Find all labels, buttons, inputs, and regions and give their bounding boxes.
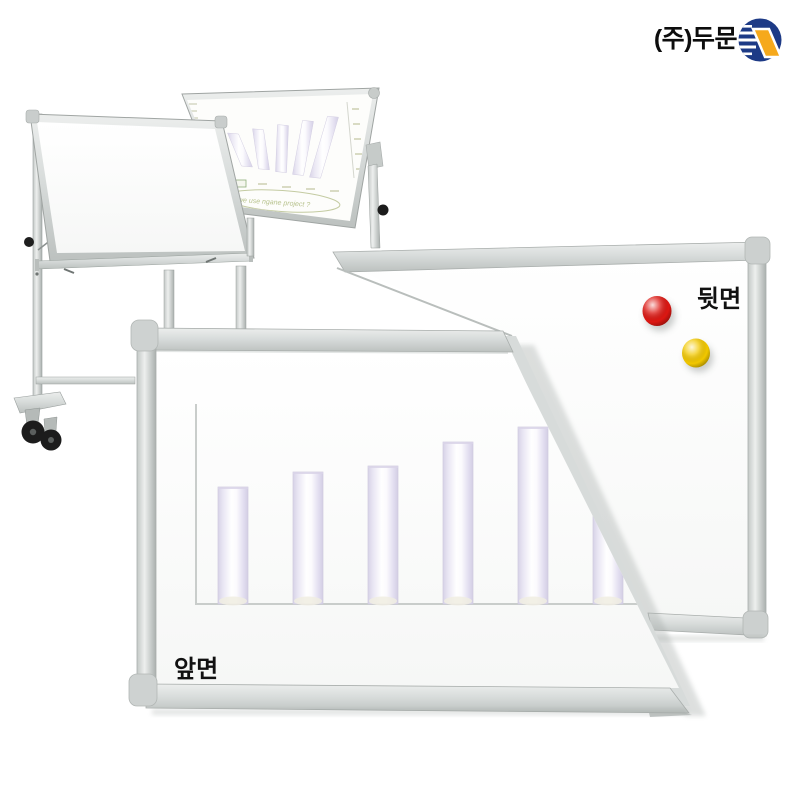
flip-lock-knob-left: [24, 237, 34, 247]
corner-cap: [745, 237, 770, 264]
corner-cap: [369, 88, 380, 99]
stand-rear-connector: [247, 218, 254, 256]
company-name: (주)두문: [654, 25, 738, 53]
product-photo: we use ngane project ?: [0, 0, 800, 800]
tray-end-cap: [35, 259, 39, 271]
back-board-label: 뒷면: [697, 286, 741, 313]
front-board-top-frame: [146, 328, 513, 352]
logo-mark: [730, 19, 782, 62]
caster-wheel-rear: [41, 417, 62, 451]
corner-cap: [215, 116, 227, 128]
brand-logo: (주)두문: [654, 19, 782, 62]
stand-lower-crossbar: [36, 377, 135, 384]
tilted-front-board-surface: [37, 122, 245, 253]
magnet-red-shine: [643, 296, 672, 326]
front-board-label: 앞면: [174, 656, 218, 683]
tilted-front-board: [26, 110, 254, 261]
corner-cap: [26, 110, 39, 123]
screw-dot: [35, 272, 38, 275]
stand-center-post: [236, 266, 246, 332]
board-stopper: [64, 269, 74, 273]
front-board-bottom-frame: [146, 684, 689, 713]
stand-right-post: [368, 164, 380, 248]
corner-cap: [743, 611, 768, 638]
stand-center-post: [164, 270, 174, 332]
front-board-left-frame: [137, 330, 156, 690]
flip-lock-knob-right: [378, 205, 389, 216]
corner-cap: [131, 320, 158, 351]
front-board-bottom-frame-shadow: [152, 709, 687, 715]
corner-cap: [129, 674, 157, 706]
magnet-yellow-shine: [682, 339, 710, 368]
back-board-right-frame: [748, 244, 766, 634]
